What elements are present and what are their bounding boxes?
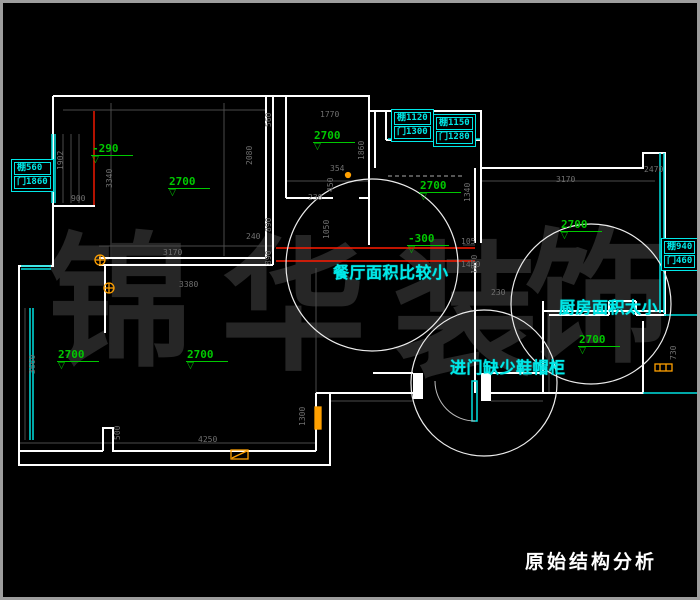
dimension-label-3: 1770 bbox=[320, 111, 339, 119]
elevation-marker-2: 2700▽ bbox=[168, 175, 210, 196]
elevation-marker-7: 2700▽ bbox=[578, 333, 620, 354]
dimension-label-17: 2470 bbox=[644, 166, 663, 174]
elevation-marker-9: 2700▽ bbox=[186, 348, 228, 369]
elevation-marker-1: -290▽ bbox=[91, 142, 133, 163]
dimension-label-25: 1300 bbox=[299, 407, 307, 426]
dimension-label-13: 1050 bbox=[323, 220, 331, 239]
cad-canvas: 锦华装饰 bbox=[0, 0, 700, 600]
info-box-top-beam-1: 棚1120门1300 bbox=[391, 109, 434, 142]
dimension-label-1: 3170 bbox=[163, 249, 182, 257]
elevation-triangle-icon: ▽ bbox=[58, 362, 99, 369]
info-box-line: 门1300 bbox=[394, 126, 431, 139]
dimension-label-19: 900 bbox=[71, 195, 85, 203]
info-box-top-beam-2: 棚1150门1280 bbox=[433, 114, 476, 147]
gas-valve bbox=[346, 173, 351, 178]
info-box-left-beam: 棚560门1860 bbox=[11, 159, 54, 192]
dimension-label-23: 500 bbox=[114, 426, 122, 440]
elevation-marker-8: 2700▽ bbox=[57, 348, 99, 369]
dimension-label-7: 450 bbox=[327, 178, 335, 192]
info-box-line: 棚560 bbox=[14, 162, 51, 175]
dimension-label-4: 560 bbox=[265, 113, 273, 127]
window-sill-right-wall bbox=[315, 407, 321, 429]
door-sill-east bbox=[655, 364, 672, 371]
info-box-line: 门1860 bbox=[14, 176, 51, 189]
dimension-label-18: 1340 bbox=[464, 183, 472, 202]
dimension-label-11: 240 bbox=[246, 233, 260, 241]
dimension-label-26: 730 bbox=[670, 346, 678, 360]
dimension-label-10: 890 bbox=[265, 218, 273, 232]
elevation-triangle-icon: ▽ bbox=[420, 193, 461, 200]
entry-door-swing-arc bbox=[435, 381, 475, 421]
info-box-line: 门460 bbox=[664, 255, 695, 268]
dimension-label-16: 3170 bbox=[556, 176, 575, 184]
dimension-label-21: 3340 bbox=[106, 169, 114, 188]
elevation-marker-6: -300▽ bbox=[407, 232, 449, 253]
dimension-label-20: 1902 bbox=[57, 151, 65, 170]
dimension-label-6: 1860 bbox=[358, 141, 366, 160]
dimension-label-2: 3380 bbox=[179, 281, 198, 289]
elevation-triangle-icon: ▽ bbox=[187, 362, 228, 369]
info-box-right-beam: 棚940门460 bbox=[661, 238, 698, 271]
elevation-triangle-icon: ▽ bbox=[169, 189, 210, 196]
callout-kitchen: 厨房面积太小 bbox=[559, 294, 658, 318]
info-box-line: 棚1150 bbox=[436, 117, 473, 130]
elevation-marker-4: 2700▽ bbox=[419, 179, 461, 200]
dimension-label-9: 230 bbox=[308, 194, 322, 202]
elevation-marker-3: 2700▽ bbox=[313, 129, 355, 150]
elevation-triangle-icon: ▽ bbox=[579, 347, 620, 354]
info-box-line: 门1280 bbox=[436, 131, 473, 144]
info-box-line: 棚940 bbox=[664, 241, 695, 254]
elevation-triangle-icon: ▽ bbox=[314, 143, 355, 150]
door-pier-left bbox=[413, 373, 423, 399]
elevation-marker-5: 2700▽ bbox=[560, 218, 602, 239]
callout-entry: 进门缺少鞋帽柜 bbox=[450, 354, 566, 378]
callout-dining: 餐厅面积比较小 bbox=[333, 259, 449, 283]
dimension-label-14: 105 bbox=[461, 238, 475, 246]
elevation-triangle-icon: ▽ bbox=[561, 232, 602, 239]
dimension-label-12: 890 bbox=[265, 251, 273, 265]
plan-title: 原始结构分析 bbox=[525, 547, 657, 574]
dimension-label-8: 354 bbox=[330, 165, 344, 173]
dimension-label-22: 3660 bbox=[29, 355, 37, 374]
elevation-triangle-icon: ▽ bbox=[92, 156, 133, 163]
elevation-triangle-icon: ▽ bbox=[408, 246, 449, 253]
dimension-label-27: 230 bbox=[491, 289, 505, 297]
dimension-label-24: 4250 bbox=[198, 436, 217, 444]
dimension-label-28: 1440 bbox=[461, 261, 480, 269]
info-box-line: 棚1120 bbox=[394, 112, 431, 125]
dimension-label-5: 2080 bbox=[246, 146, 254, 165]
